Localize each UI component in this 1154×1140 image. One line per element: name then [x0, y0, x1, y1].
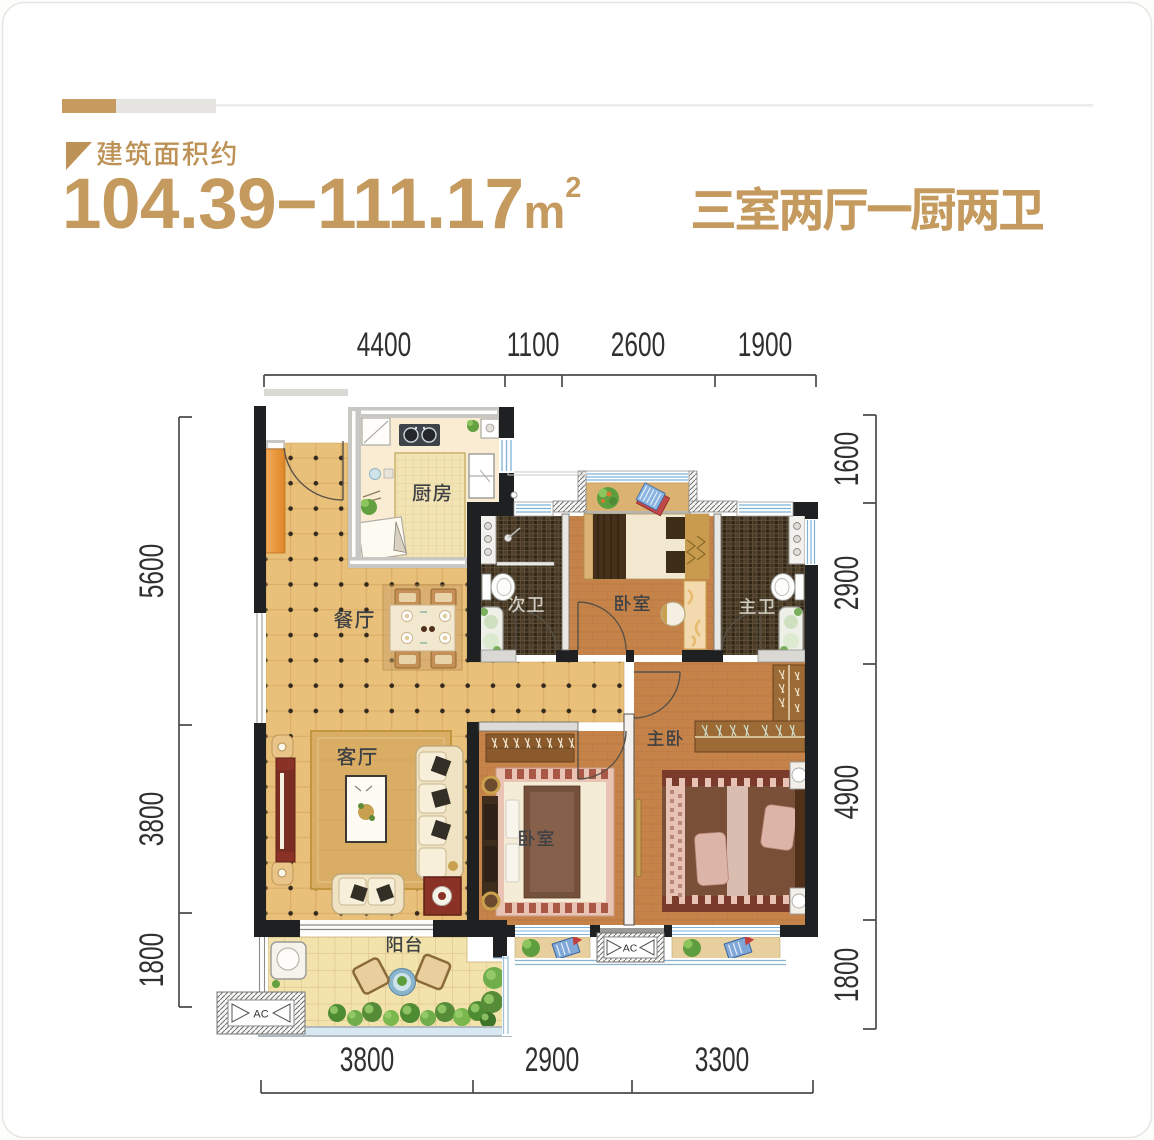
svg-text:AC: AC	[623, 943, 638, 955]
svg-text:3800: 3800	[340, 1041, 394, 1079]
svg-text:3300: 3300	[695, 1041, 749, 1079]
svg-text:4400: 4400	[357, 326, 411, 364]
svg-text:2600: 2600	[611, 326, 665, 364]
svg-text:1800: 1800	[133, 933, 171, 987]
svg-text:1900: 1900	[738, 326, 792, 364]
svg-text:104.39−111.17m2: 104.39−111.17m2	[62, 165, 581, 244]
svg-text:2900: 2900	[828, 556, 866, 610]
svg-text:3800: 3800	[133, 792, 171, 846]
svg-text:1800: 1800	[828, 948, 866, 1002]
svg-text:2900: 2900	[525, 1041, 579, 1079]
svg-text:5600: 5600	[133, 544, 171, 598]
svg-text:4900: 4900	[828, 765, 866, 819]
svg-text:1100: 1100	[507, 326, 560, 364]
svg-text:1600: 1600	[828, 432, 866, 486]
svg-text:AC: AC	[253, 1009, 268, 1021]
